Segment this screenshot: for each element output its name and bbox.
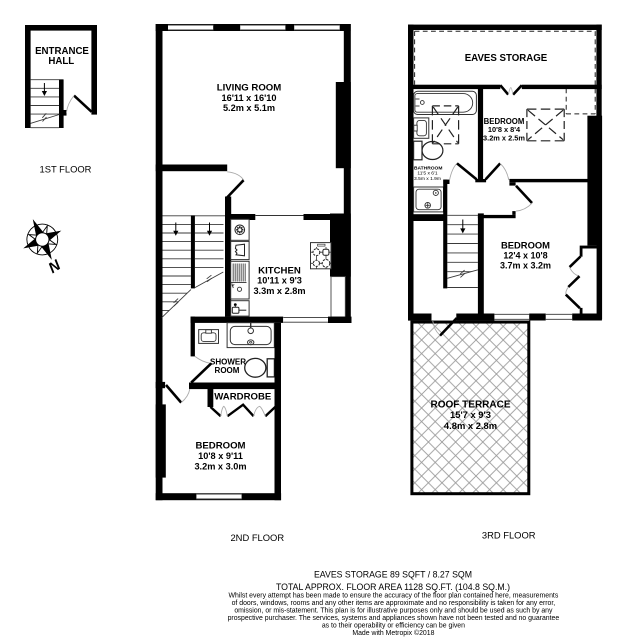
svg-text:10'8 x 9'11: 10'8 x 9'11 [198, 451, 243, 461]
svg-text:Whilst every attempt has been: Whilst every attempt has been made to en… [229, 592, 559, 599]
svg-text:2ND FLOOR: 2ND FLOOR [230, 532, 284, 543]
svg-text:4.8m x 2.8m: 4.8m x 2.8m [444, 420, 497, 431]
svg-text:prospective purchaser. The ser: prospective purchaser. The services, sys… [228, 615, 560, 622]
svg-text:3.3m x 2.8m: 3.3m x 2.8m [253, 286, 305, 296]
svg-text:3.7m x 3.2m: 3.7m x 3.2m [500, 261, 551, 271]
svg-text:BATHROOM: BATHROOM [414, 165, 442, 171]
svg-text:ROOM: ROOM [215, 366, 240, 375]
svg-text:of doors, windows, rooms and a: of doors, windows, rooms and any other i… [232, 600, 556, 607]
svg-text:TOTAL APPROX. FLOOR AREA 1128: TOTAL APPROX. FLOOR AREA 1128 SQ.FT. (10… [276, 582, 510, 592]
svg-text:as to their operability or eff: as to their operability or efficiency ca… [322, 623, 465, 630]
svg-text:12'4 x 10'8: 12'4 x 10'8 [503, 250, 547, 260]
svg-text:WARDROBE: WARDROBE [214, 392, 272, 403]
svg-text:EAVES STORAGE: EAVES STORAGE [465, 53, 548, 64]
svg-text:5.2m x 5.1m: 5.2m x 5.1m [223, 103, 275, 113]
svg-text:3.5m x 1.9m: 3.5m x 1.9m [414, 176, 441, 182]
svg-text:1ST FLOOR: 1ST FLOOR [40, 164, 92, 175]
svg-text:16'11 x 16'10: 16'11 x 16'10 [222, 93, 277, 103]
svg-text:3.2m x 3.0m: 3.2m x 3.0m [194, 461, 246, 471]
svg-text:HALL: HALL [48, 56, 74, 67]
svg-text:EAVES STORAGE 89 SQFT / 8.27 S: EAVES STORAGE 89 SQFT / 8.27 SQM [314, 569, 472, 579]
svg-text:15'7 x 9'3: 15'7 x 9'3 [450, 409, 491, 420]
svg-text:3RD FLOOR: 3RD FLOOR [482, 530, 536, 541]
svg-text:BEDROOM: BEDROOM [501, 239, 550, 250]
svg-text:BEDROOM: BEDROOM [195, 441, 245, 452]
svg-text:10'11 x 9'3: 10'11 x 9'3 [257, 276, 302, 286]
svg-text:Made with Metropix ©2018: Made with Metropix ©2018 [352, 629, 434, 637]
svg-text:omission, or mis-statement. Th: omission, or mis-statement. This plan is… [234, 607, 553, 614]
svg-text:11'5 x 6'1: 11'5 x 6'1 [417, 171, 438, 177]
svg-text:3.2m x 2.5m: 3.2m x 2.5m [483, 133, 525, 142]
